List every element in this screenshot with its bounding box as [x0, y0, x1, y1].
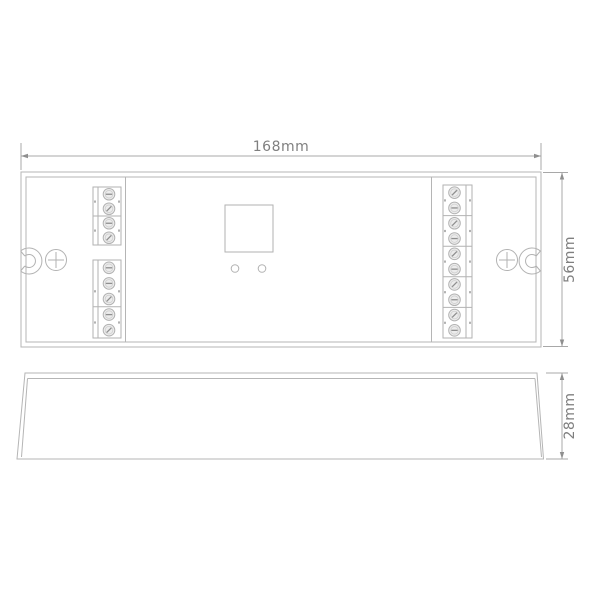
mounting-screw-left: [46, 250, 67, 271]
side-profile-inner-left: [22, 379, 28, 458]
clamp-mark: [118, 201, 120, 203]
clamp-mark: [118, 230, 120, 232]
clamp-mark: [94, 321, 96, 323]
mounting-slot-left: [21, 248, 42, 274]
dimension-height: 56mm: [543, 173, 578, 347]
clamp-mark: [469, 261, 471, 263]
side-view: [17, 373, 544, 459]
device-button-right: [258, 265, 266, 273]
arrowhead-right-icon: [534, 154, 541, 158]
dimension-width: 168mm: [21, 139, 541, 170]
arrowhead-left-icon: [21, 154, 28, 158]
clamp-mark: [444, 261, 446, 263]
dimension-depth: 28mm: [546, 373, 578, 459]
dimension-width-label: 168mm: [253, 139, 310, 155]
device-button-left: [231, 265, 239, 273]
clamp-mark: [94, 201, 96, 203]
clamp-mark: [469, 322, 471, 324]
mounting-screw-right: [497, 250, 518, 271]
terminal-block-left-0: [93, 187, 121, 245]
dimension-height-label: 56mm: [562, 236, 578, 283]
terminal-block-left-1: [93, 260, 121, 338]
dimension-depth-label: 28mm: [562, 392, 578, 439]
arrowhead-up-icon: [560, 173, 564, 180]
clamp-mark: [94, 290, 96, 292]
clamp-mark: [444, 322, 446, 324]
display-window: [225, 205, 273, 252]
clamp-mark: [94, 230, 96, 232]
clamp-mark: [469, 291, 471, 293]
technical-drawing: 168mm 56mm 28mm: [0, 0, 600, 600]
clamp-mark: [444, 199, 446, 201]
side-profile-outline: [17, 373, 544, 459]
technical-drawing-page: 168mm 56mm 28mm: [0, 0, 600, 600]
terminal-block-right-0: [443, 185, 472, 338]
top-view: [21, 172, 541, 347]
clamp-mark: [444, 291, 446, 293]
clamp-mark: [118, 321, 120, 323]
arrowhead-up-icon: [560, 373, 564, 380]
arrowhead-down-icon: [560, 340, 564, 347]
terminal-blocks: [93, 185, 472, 338]
clamp-mark: [469, 230, 471, 232]
clamp-mark: [444, 230, 446, 232]
arrowhead-down-icon: [560, 452, 564, 459]
clamp-mark: [118, 290, 120, 292]
clamp-mark: [469, 199, 471, 201]
mounting-slot-right: [519, 248, 540, 274]
